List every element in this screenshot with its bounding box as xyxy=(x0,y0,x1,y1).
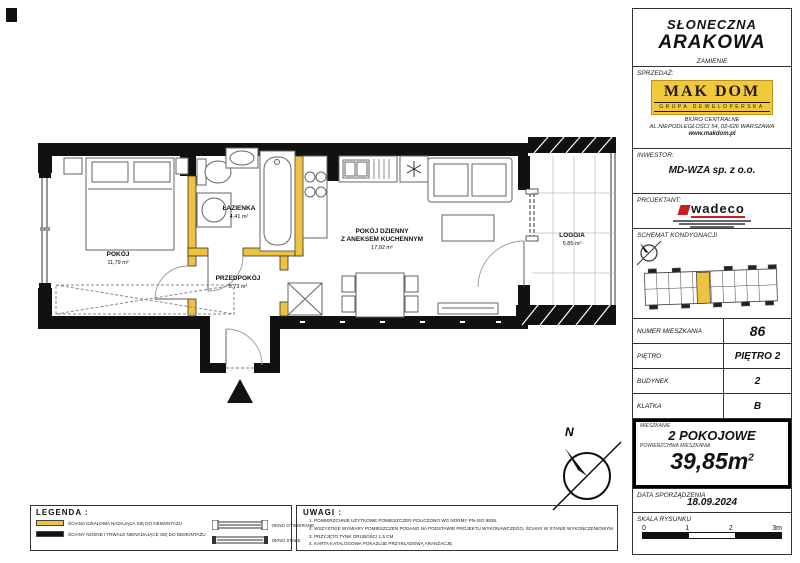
project-location: ZAMIENIE xyxy=(633,58,791,65)
makdom-logo: MAK DOM GRUPA DEWELOPERSKA xyxy=(651,80,773,115)
scale-tick: 1 xyxy=(685,525,689,532)
investor-label: INWESTOR: xyxy=(633,149,791,159)
floor-scheme-drawing xyxy=(633,239,789,311)
chair xyxy=(405,296,418,312)
apartment-number-value: 86 xyxy=(723,319,791,343)
note-line: 2. WSZYSTKIE WYMIARY POMIESZCZEŃ PODANO … xyxy=(309,525,611,533)
room-label: POKÓJ DZIENNY xyxy=(355,226,409,235)
nightstand xyxy=(176,158,188,174)
makdom-subtitle: GRUPA DEWELOPERSKA xyxy=(654,102,770,112)
apartment-type-value: 2 POKOJOWE xyxy=(640,429,784,443)
scale-section: SKALA RYSUNKU 0 1 2 3m xyxy=(633,513,791,554)
chair xyxy=(405,276,418,292)
floor-scheme-label: SCHEMAT KONDYGNACJI xyxy=(633,229,791,239)
wadeco-brand-text: wadeco xyxy=(691,202,745,218)
scale-tick: 2 xyxy=(729,525,733,532)
legend-label: ŚCIANY NOŚNE I TRWALE NIENADAJĄCE SIĘ DO… xyxy=(68,532,206,537)
pillow xyxy=(134,162,170,182)
nightstand xyxy=(64,158,82,174)
project-title-section: SŁONECZNA ARAKOWA ZAMIENIE xyxy=(633,9,791,67)
coffee-table xyxy=(442,215,494,241)
table-row: NUMER MIESZKANIA 86 xyxy=(633,319,791,344)
floor-plan-page: { "titlebox": { "line1": "SŁONECZNA", "l… xyxy=(0,0,800,563)
structural-wall-swatch xyxy=(36,531,64,537)
pillow xyxy=(92,162,128,182)
investor-section: INWESTOR: MD-WZA sp. z o.o. xyxy=(633,149,791,194)
wadeco-logo: wadeco xyxy=(633,202,791,218)
apartment-details-table: NUMER MIESZKANIA 86 PIĘTRO PIĘTRO 2 BUDY… xyxy=(633,319,791,419)
partition-wall-swatch xyxy=(36,520,64,526)
building-value: 2 xyxy=(723,369,791,393)
row-label: PIĘTRO xyxy=(633,344,723,368)
project-name-line1: SŁONECZNA xyxy=(633,17,791,32)
scale-segment xyxy=(735,533,781,538)
room-label: PRZEDPOKÓJ xyxy=(216,273,261,282)
highlighted-unit xyxy=(696,272,710,303)
loggia-floor-grid xyxy=(532,156,614,305)
office-line2: AL.NIEPODLEGŁOŚCI 54, 02-626 WARSZAWA xyxy=(633,124,791,131)
room-area: 5,73 m² xyxy=(229,284,248,290)
makdom-brand-text: MAK DOM xyxy=(654,84,770,100)
dining-table xyxy=(356,273,404,317)
chair xyxy=(342,296,355,312)
wardrobe xyxy=(56,285,234,314)
staircase-value: B xyxy=(723,394,791,419)
website-link[interactable]: www.makdom.pl xyxy=(688,131,735,137)
floor-plan-drawing: POKÓJ 11,79 m² ŁAZIENKA 4,41 m² PRZEDPOK… xyxy=(30,133,630,418)
wadeco-logo-mark xyxy=(678,205,691,215)
note-line: 3. PRZYJĘTO TYNK GRUBOŚCI 1,5 CM xyxy=(309,533,611,541)
room-label: POKÓJ xyxy=(107,249,130,258)
room-area: 4,41 m² xyxy=(230,214,249,220)
apartment-area-value: 39,85m2 xyxy=(640,449,784,473)
room-area: 5,85 m² xyxy=(563,241,582,247)
chair xyxy=(342,276,355,292)
window-fixed-icon xyxy=(212,535,268,545)
scale-segment xyxy=(689,533,735,538)
legend-item-structural-wall: ŚCIANY NOŚNE I TRWALE NIENADAJĄCE SIĘ DO… xyxy=(36,531,206,537)
legend-label: ŚCIANA DZIAŁOWA NADAJĄCA SIĘ DO DEMONTAŻ… xyxy=(68,521,182,526)
notes-box: UWAGI : 1. POWIERZCHNIE UŻYTKOWE POMIESZ… xyxy=(296,505,618,551)
summary-section: MIESZKANIE 2 POKOJOWE POWIERZCHNIA MIESZ… xyxy=(633,419,791,489)
legend-box: LEGENDA : ŚCIANA DZIAŁOWA NADAJĄCA SIĘ D… xyxy=(30,505,292,551)
room-area: 17,92 m² xyxy=(371,245,393,251)
scale-segment xyxy=(643,533,689,538)
room-area: 11,79 m² xyxy=(107,260,128,266)
scale-tick: 0 xyxy=(642,525,646,532)
table-row: KLATKA B xyxy=(633,394,791,419)
floor-value: PIĘTRO 2 xyxy=(723,344,791,368)
row-label: KLATKA xyxy=(633,394,723,419)
legend-title: LEGENDA : xyxy=(36,508,286,517)
kitchen-hob-counter xyxy=(303,156,327,238)
window-openable-symbol xyxy=(38,173,52,288)
page-corner-mark xyxy=(6,8,17,22)
furniture xyxy=(56,148,512,317)
sales-label: SPRZEDAŻ: xyxy=(633,67,791,77)
room-label: Z ANEKSEM KUCHENNYM xyxy=(341,236,423,243)
designer-section: PROJEKTANT: wadeco xyxy=(633,194,791,229)
project-name-line2: ARAKOWA xyxy=(633,32,791,54)
table-row: PIĘTRO PIĘTRO 2 xyxy=(633,344,791,369)
row-label: NUMER MIESZKANIA xyxy=(633,319,723,343)
title-block-panel: SŁONECZNA ARAKOWA ZAMIENIE SPRZEDAŻ: MAK… xyxy=(632,8,792,555)
designer-address-lines xyxy=(673,220,751,228)
investor-name: MD-WZA sp. z o.o. xyxy=(633,165,791,176)
date-section: DATA SPORZĄDZENIA 18.09.2024 xyxy=(633,489,791,513)
row-label: BUDYNEK xyxy=(633,369,723,393)
notes-title: UWAGI : xyxy=(303,508,611,517)
north-label: N xyxy=(565,425,574,439)
scale-bar: 0 1 2 3m xyxy=(642,525,782,539)
scale-label: SKALA RYSUNKU xyxy=(633,513,791,523)
note-line: 1. POWIERZCHNIE UŻYTKOWE POMIESZCZEŃ POL… xyxy=(309,517,611,525)
sales-section: SPRZEDAŻ: MAK DOM GRUPA DEWELOPERSKA BIU… xyxy=(633,67,791,149)
compass-rose: N xyxy=(545,418,630,518)
window-openable-icon xyxy=(212,520,268,530)
entrance-arrow xyxy=(227,379,253,403)
room-label: LOGGIA xyxy=(559,232,585,239)
summary-box: MIESZKANIE 2 POKOJOWE POWIERZCHNIA MIESZ… xyxy=(633,419,791,488)
scale-tick: 3m xyxy=(772,525,782,532)
note-line: 4. KARTA KATALOGOWA POKAZUJE PRZYKŁADOWĄ… xyxy=(309,540,611,548)
floor-scheme-section: SCHEMAT KONDYGNACJI xyxy=(633,229,791,319)
room-label: ŁAZIENKA xyxy=(223,205,256,212)
legend-item-partition-wall: ŚCIANA DZIAŁOWA NADAJĄCA SIĘ DO DEMONTAŻ… xyxy=(36,520,206,526)
table-row: BUDYNEK 2 xyxy=(633,369,791,394)
